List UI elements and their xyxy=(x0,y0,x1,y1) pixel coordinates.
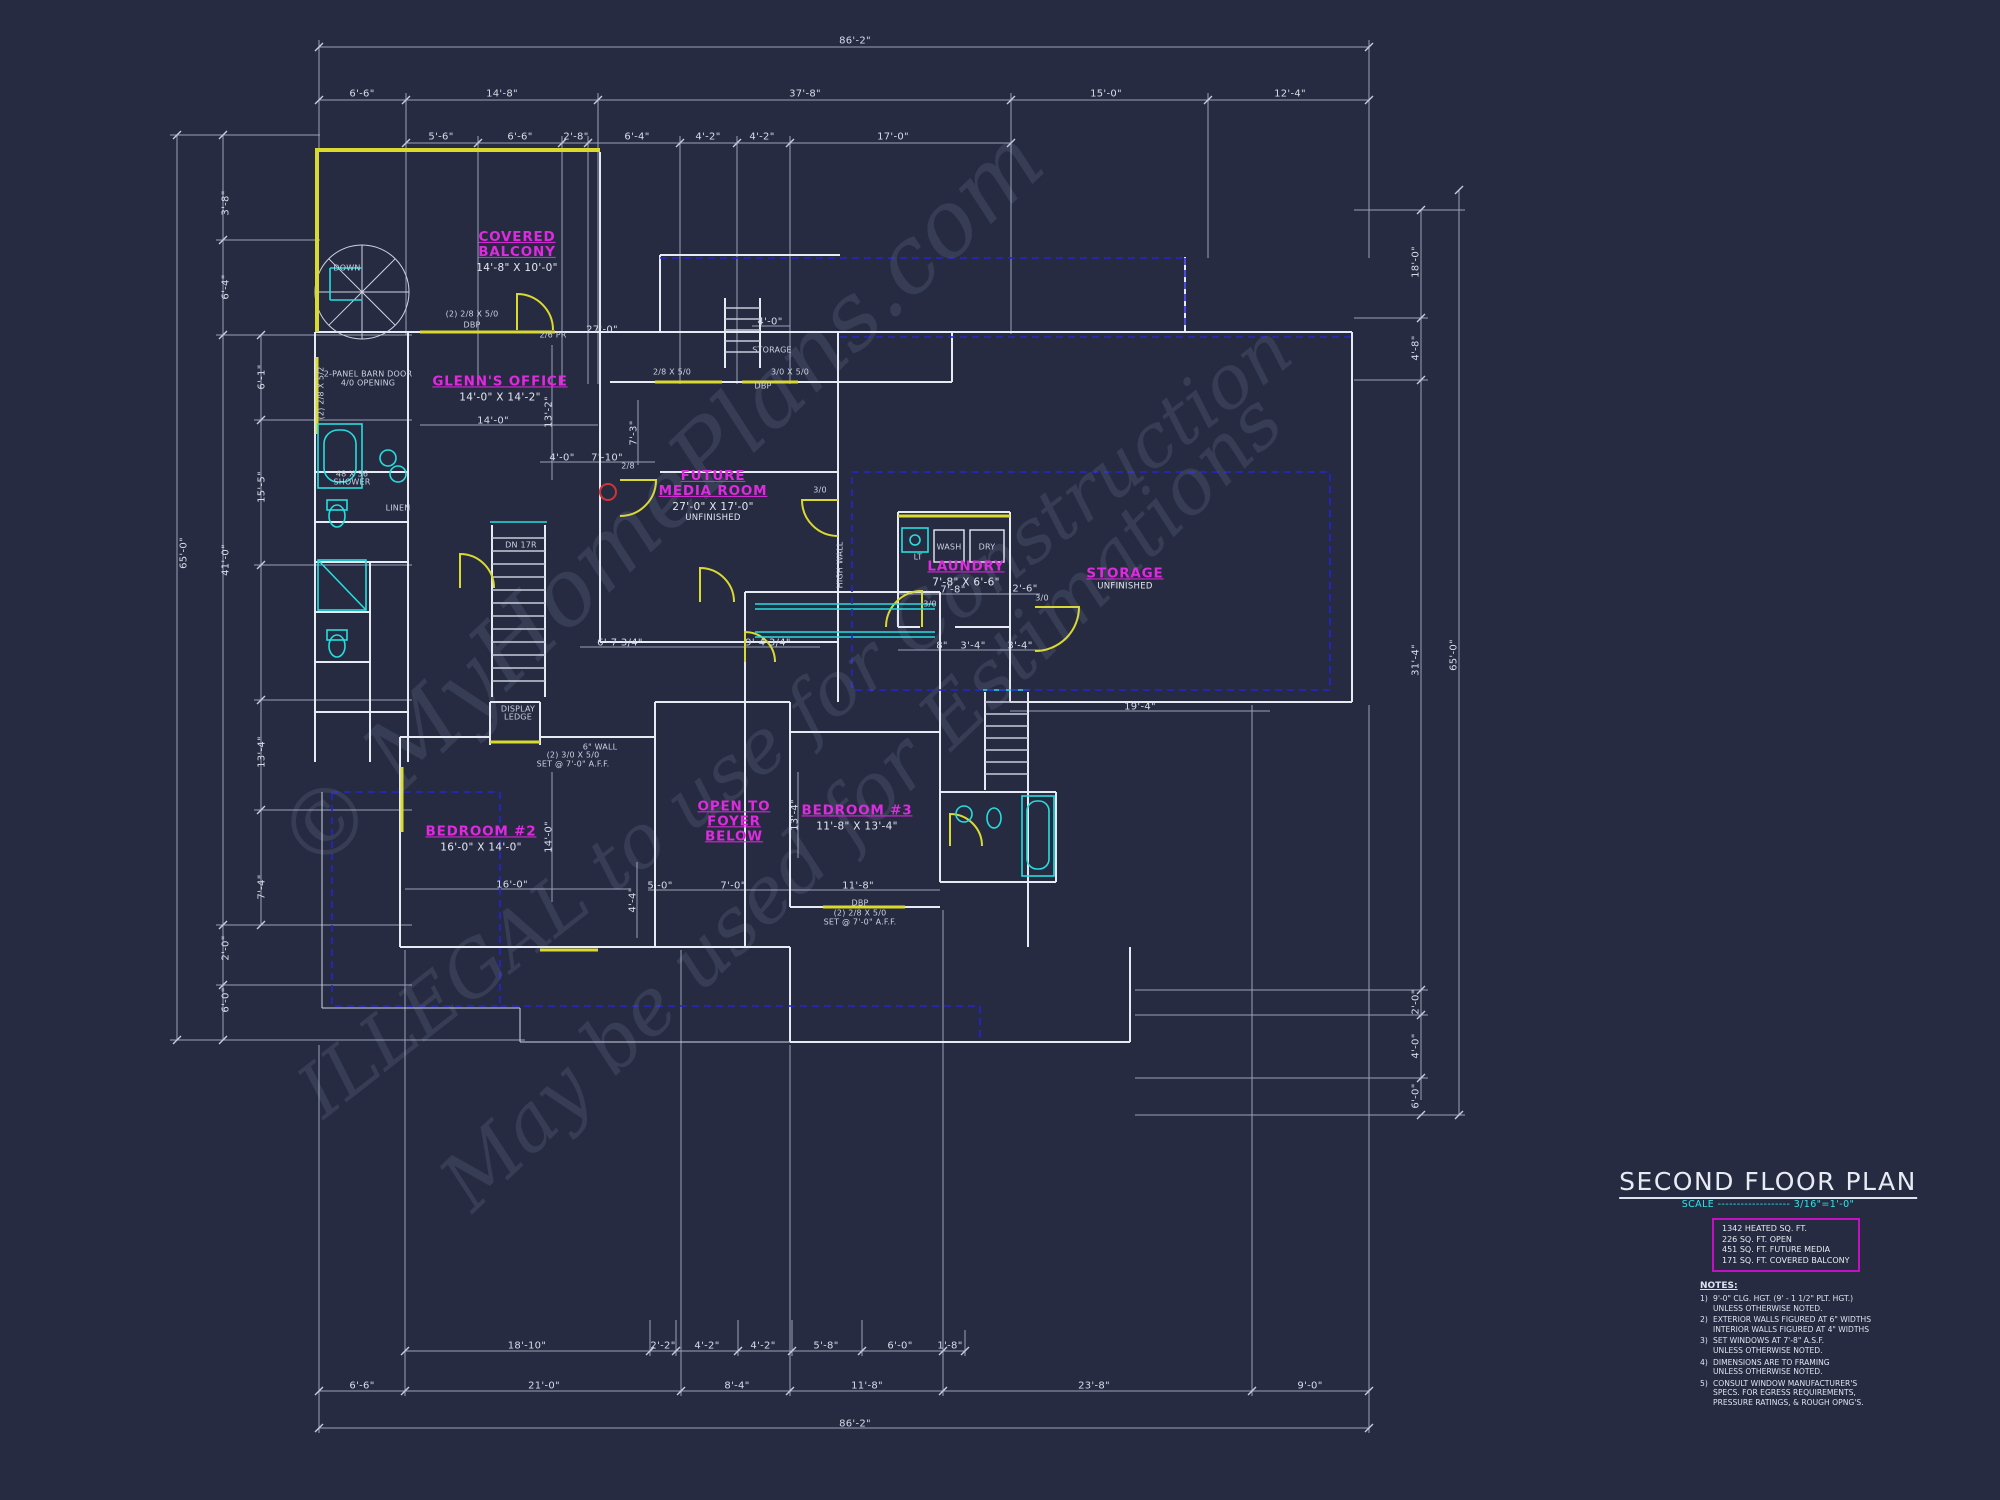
dimension-label: 11'-8" xyxy=(851,1381,883,1392)
annotation-label: WASH xyxy=(937,543,962,552)
dimension-label: 7'-10" xyxy=(591,453,623,464)
annotation-label: DOWN xyxy=(333,264,360,273)
dimension-label: 7'-3" xyxy=(629,420,640,445)
dimension-ticks xyxy=(173,43,1463,1432)
annotation-label: DN 17R xyxy=(505,541,537,550)
notes-heading: NOTES: xyxy=(1700,1281,1930,1291)
dimension-label: 15'-0" xyxy=(1090,89,1122,100)
sink xyxy=(956,806,972,822)
dimension-label: 86'-2" xyxy=(839,1419,871,1430)
dimension-label: 4'-0" xyxy=(549,453,574,464)
room-name: STORAGE xyxy=(1086,566,1163,581)
room-extra: UNFINISHED xyxy=(1086,582,1163,592)
dimension-label: 5'-6" xyxy=(428,132,453,143)
room-dimensions: 7'-8" X 6'-6" xyxy=(927,577,1004,589)
annotation-label: HIGH WALL xyxy=(836,542,845,589)
dimension-label: 9'-4 3/4" xyxy=(745,638,791,649)
dimension-label: 18'-10" xyxy=(508,1341,547,1352)
dimension-label: 4'-0" xyxy=(757,317,782,328)
room-dimensions: 11'-8" X 13'-4" xyxy=(802,821,913,833)
area-line: 171 SQ. FT. COVERED BALCONY xyxy=(1722,1256,1850,1267)
dimension-label: 12'-4" xyxy=(1274,89,1306,100)
room-dimensions: 16'-0" X 14'-0" xyxy=(426,842,537,854)
room-name: GLENN'S OFFICE xyxy=(432,374,567,389)
room-name: LAUNDRY xyxy=(927,559,1004,574)
dimension-label: 21'-0" xyxy=(528,1381,560,1392)
annotation-label: (2) 2/8 X 5/0 xyxy=(446,310,499,319)
annotation-label: 2-PANEL BARN DOOR xyxy=(324,370,413,379)
dimension-label: 2'-0" xyxy=(1411,989,1422,1014)
dimension-label: 3'-4" xyxy=(960,641,985,652)
dimension-label: 4'-2" xyxy=(695,132,720,143)
dimension-label: 65'-0" xyxy=(1449,639,1460,671)
annotation-label: 3/0 xyxy=(923,600,936,609)
scale-label: SCALE ------------------- 3/16"=1'-0" xyxy=(1682,1199,1855,1210)
dimension-label: 13'-4" xyxy=(790,799,801,831)
area-line: 1342 HEATED SQ. FT. xyxy=(1722,1224,1850,1235)
dimension-label: 2'-6" xyxy=(1012,584,1037,595)
annotation-label: 3/0 X 5/0 xyxy=(771,368,809,377)
room-label: BEDROOM #311'-8" X 13'-4" xyxy=(802,803,913,832)
annotation-label: (2) 2/8 X 5/0 xyxy=(834,909,887,918)
room-dimensions: 27'-0" X 17'-0" xyxy=(659,501,768,513)
dimension-label: 6'-6" xyxy=(507,132,532,143)
annotation-label: LEDGE xyxy=(504,713,532,722)
sink xyxy=(390,466,406,482)
dimension-label: 6'-7 3/4" xyxy=(597,638,643,649)
dimension-lines xyxy=(170,40,1465,1433)
room-label: LAUNDRY7'-8" X 6'-6" xyxy=(927,559,1004,588)
notes-block: NOTES: 1)9'-0" CLG. HGT. (9' - 1 1/2" PL… xyxy=(1700,1281,1930,1410)
dimension-label: 8" xyxy=(936,641,948,652)
note-item: 1)9'-0" CLG. HGT. (9' - 1 1/2" PLT. HGT.… xyxy=(1700,1294,1930,1313)
dimension-label: 19'-4" xyxy=(1124,702,1156,713)
toilet xyxy=(329,635,345,657)
annotation-label: 3/0 xyxy=(1035,594,1048,603)
area-line: 226 SQ. FT. OPEN xyxy=(1722,1235,1850,1246)
dimension-label: 13'-2" xyxy=(544,396,555,428)
dimension-label: 5'-8" xyxy=(813,1341,838,1352)
dimension-label: 5'-0" xyxy=(647,881,672,892)
room-name: BEDROOM #2 xyxy=(426,824,537,839)
note-item: 5)CONSULT WINDOW MANUFACTURER'S SPECS. F… xyxy=(1700,1379,1930,1408)
note-item: 2)EXTERIOR WALLS FIGURED AT 6" WIDTHS IN… xyxy=(1700,1315,1930,1334)
dimension-label: 15'-5" xyxy=(257,471,268,503)
dimension-label: 4'-2" xyxy=(749,132,774,143)
dimension-label: 4'-2" xyxy=(750,1341,775,1352)
annotation-label: 3/0 xyxy=(813,486,826,495)
page-title: SECOND FLOOR PLAN xyxy=(1619,1167,1917,1199)
dimension-label: 6'-0" xyxy=(1411,1083,1422,1108)
annotation-label: SET @ 7'-0" A.F.F. xyxy=(537,760,610,769)
dimension-label: 31'-4" xyxy=(1411,644,1422,676)
dimension-label: 6'-4" xyxy=(221,274,232,299)
room-label: FUTURE MEDIA ROOM27'-0" X 17'-0"UNFINISH… xyxy=(659,469,768,523)
toilet xyxy=(329,505,345,527)
room-name: BEDROOM #3 xyxy=(802,803,913,818)
stair-treads xyxy=(492,308,1028,774)
note-item: 4)DIMENSIONS ARE TO FRAMING UNLESS OTHER… xyxy=(1700,1358,1930,1377)
dimension-label: 65'-0" xyxy=(179,537,190,569)
annotation-label: (2) 3/0 X 5/0 xyxy=(547,751,600,760)
dimension-label: 6'-4" xyxy=(624,132,649,143)
dimension-label: 37'-8" xyxy=(789,89,821,100)
dimension-label: 4'-2" xyxy=(694,1341,719,1352)
area-summary-box: 1342 HEATED SQ. FT.226 SQ. FT. OPEN451 S… xyxy=(1712,1218,1860,1272)
toilet xyxy=(987,808,1001,828)
dimension-label: 13'-4" xyxy=(257,736,268,768)
dimension-label: 7'-4" xyxy=(257,874,268,899)
dimension-label: 27'-0" xyxy=(586,325,618,336)
dimension-label: 4'-0" xyxy=(1411,1033,1422,1058)
room-label: COVERED BALCONY14'-8" X 10'-0" xyxy=(476,230,557,274)
dimension-label: 2'-8" xyxy=(563,132,588,143)
annotation-label: 2/8 xyxy=(621,462,634,471)
annotation-label: DBP xyxy=(463,321,480,330)
dimension-label: 2'-0" xyxy=(221,935,232,960)
dimension-label: 6'-0" xyxy=(887,1341,912,1352)
flue-circle xyxy=(600,484,616,500)
notes-list: 1)9'-0" CLG. HGT. (9' - 1 1/2" PLT. HGT.… xyxy=(1700,1294,1930,1408)
dimension-label: 14'-0" xyxy=(544,821,555,853)
laundry-tub xyxy=(902,528,928,552)
dimension-label: 18'-0" xyxy=(1411,246,1422,278)
annotation-label: DBP xyxy=(851,899,868,908)
dimension-label: 3'-8" xyxy=(221,190,232,215)
annotation-label: DRY xyxy=(979,543,996,552)
annotation-label: SHOWER xyxy=(333,478,370,487)
annotation-label: SET @ 7'-0" A.F.F. xyxy=(824,918,897,927)
dimension-label: 4'-4" xyxy=(628,887,639,912)
annotation-label: 2/6 PR xyxy=(539,331,566,340)
dimension-label: 8'-4" xyxy=(724,1381,749,1392)
dimension-label: 4'-8" xyxy=(1411,335,1422,360)
dimension-label: 23'-8" xyxy=(1078,1381,1110,1392)
dimension-label: 6'-1" xyxy=(257,364,268,389)
dimension-label: 17'-0" xyxy=(877,132,909,143)
dimension-label: 6'-0" xyxy=(221,987,232,1012)
note-item: 3)SET WINDOWS AT 7'-8" A.S.F. UNLESS OTH… xyxy=(1700,1336,1930,1355)
room-label: BEDROOM #216'-0" X 14'-0" xyxy=(426,824,537,853)
room-name: FUTURE MEDIA ROOM xyxy=(659,469,768,499)
room-name: OPEN TO FOYER BELOW xyxy=(698,799,771,844)
dimension-label: 41'-0" xyxy=(221,544,232,576)
annotation-label: 2/8 X 5/0 xyxy=(653,368,691,377)
dimension-label: 3'-4" xyxy=(1007,641,1032,652)
annotation-label: LT xyxy=(914,553,923,562)
room-label: OPEN TO FOYER BELOW xyxy=(698,799,771,844)
plan-drawing xyxy=(0,0,2000,1500)
dimension-label: 14'-8" xyxy=(486,89,518,100)
floorplan-canvas: © MyHomePlans.com ILLEGAL to use for Con… xyxy=(0,0,2000,1500)
dimension-label: 2'-2" xyxy=(650,1341,675,1352)
sink xyxy=(380,450,396,466)
annotation-label: STORAGE xyxy=(752,346,791,355)
annotation-label: DBP xyxy=(754,382,771,391)
dimension-label: 6'-6" xyxy=(349,89,374,100)
room-label: STORAGEUNFINISHED xyxy=(1086,566,1163,591)
area-line: 451 SQ. FT. FUTURE MEDIA xyxy=(1722,1245,1850,1256)
dimension-label: 16'-0" xyxy=(496,880,528,891)
dimension-label: 7'-0" xyxy=(720,881,745,892)
dimension-label: 14'-0" xyxy=(477,416,509,427)
annotation-label: 4/0 OPENING xyxy=(341,379,395,388)
room-dimensions: 14'-8" X 10'-0" xyxy=(476,262,557,274)
annotation-label: LINEN xyxy=(386,504,411,513)
dimension-label: 7'-8" xyxy=(940,585,965,596)
dimension-label: 86'-2" xyxy=(839,36,871,47)
dimension-label: 6'-6" xyxy=(349,1381,374,1392)
dimension-label: 9'-0" xyxy=(1297,1381,1322,1392)
dimension-label: 1'-8" xyxy=(937,1341,962,1352)
room-extra: UNFINISHED xyxy=(659,513,768,523)
spiral-stair-spokes xyxy=(315,245,409,339)
room-name: COVERED BALCONY xyxy=(476,230,557,260)
dimension-label: 11'-8" xyxy=(842,881,874,892)
